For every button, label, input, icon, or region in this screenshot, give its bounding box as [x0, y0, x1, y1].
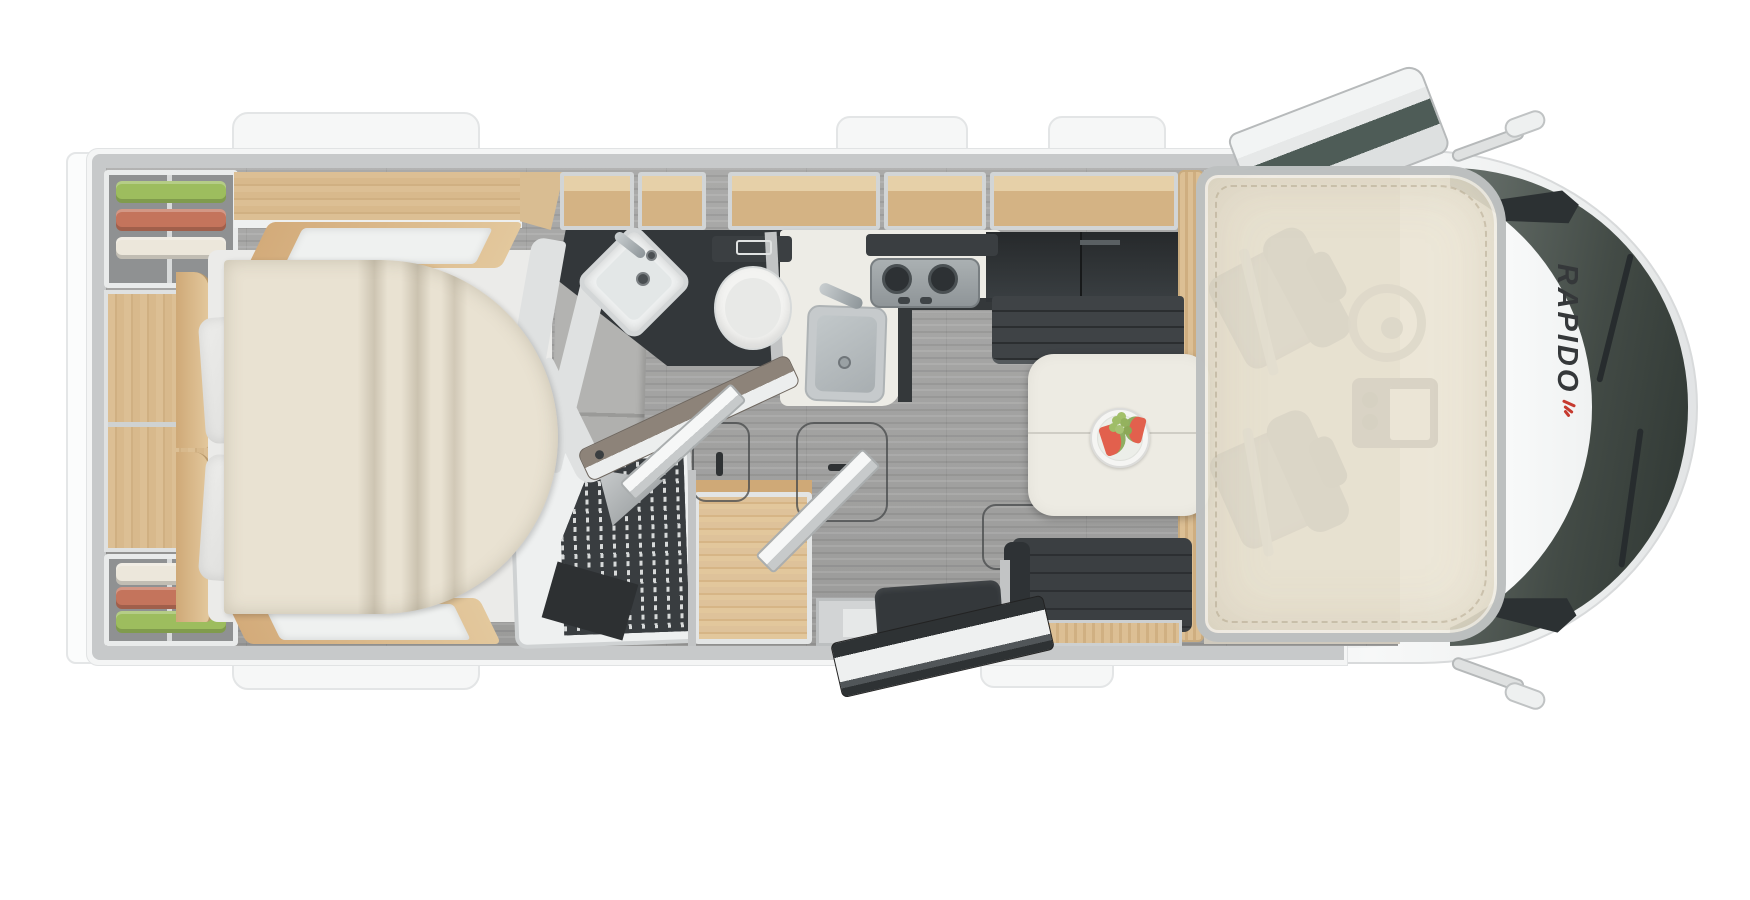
- kitchen-sink: [804, 305, 887, 404]
- sink-drain: [838, 356, 851, 369]
- overhead-shelf-3: [728, 172, 880, 230]
- hatch-handle-1: [716, 452, 723, 476]
- overhead-shelf-1: [560, 172, 634, 230]
- hob-knob-2: [920, 297, 932, 304]
- grape-cluster: [1112, 416, 1121, 425]
- bench-cushion: [285, 228, 493, 264]
- mirror-head: [1502, 107, 1548, 140]
- side-mirror-top: [1446, 110, 1546, 170]
- faucet-hole: [646, 250, 657, 261]
- toilet: [714, 266, 792, 350]
- drop-down-bed-overlay: [1196, 166, 1506, 642]
- basin-drain: [636, 272, 650, 286]
- hob-knob-1: [898, 297, 910, 304]
- toilet-flush-plate: [736, 240, 772, 255]
- overhead-locker-overbed: [234, 172, 522, 228]
- mirror-head: [1502, 679, 1548, 712]
- clothes-stack-red: [116, 209, 226, 231]
- magazine-box: [1038, 620, 1182, 646]
- brand-flame-icon: [1557, 400, 1577, 416]
- hob-burner-1: [882, 264, 912, 294]
- cabinet-handle: [1080, 240, 1120, 245]
- partition-wall-wardrobe: [688, 470, 696, 646]
- side-mirror-bottom: [1446, 648, 1546, 710]
- hob-burner-2: [928, 264, 958, 294]
- motorhome-floorplan: RAPIDO: [0, 0, 1750, 900]
- overhead-shelf-5: [990, 172, 1178, 230]
- brand-text: RAPIDO: [1551, 264, 1584, 395]
- kitchen-dark-panel-1: [898, 300, 912, 402]
- brand-logotype: RAPIDO: [1545, 245, 1589, 435]
- overhead-shelf-2: [638, 172, 706, 230]
- hob-splash-panel: [866, 234, 998, 256]
- clothes-stack-green: [116, 181, 226, 203]
- overhead-shelf-4: [884, 172, 986, 230]
